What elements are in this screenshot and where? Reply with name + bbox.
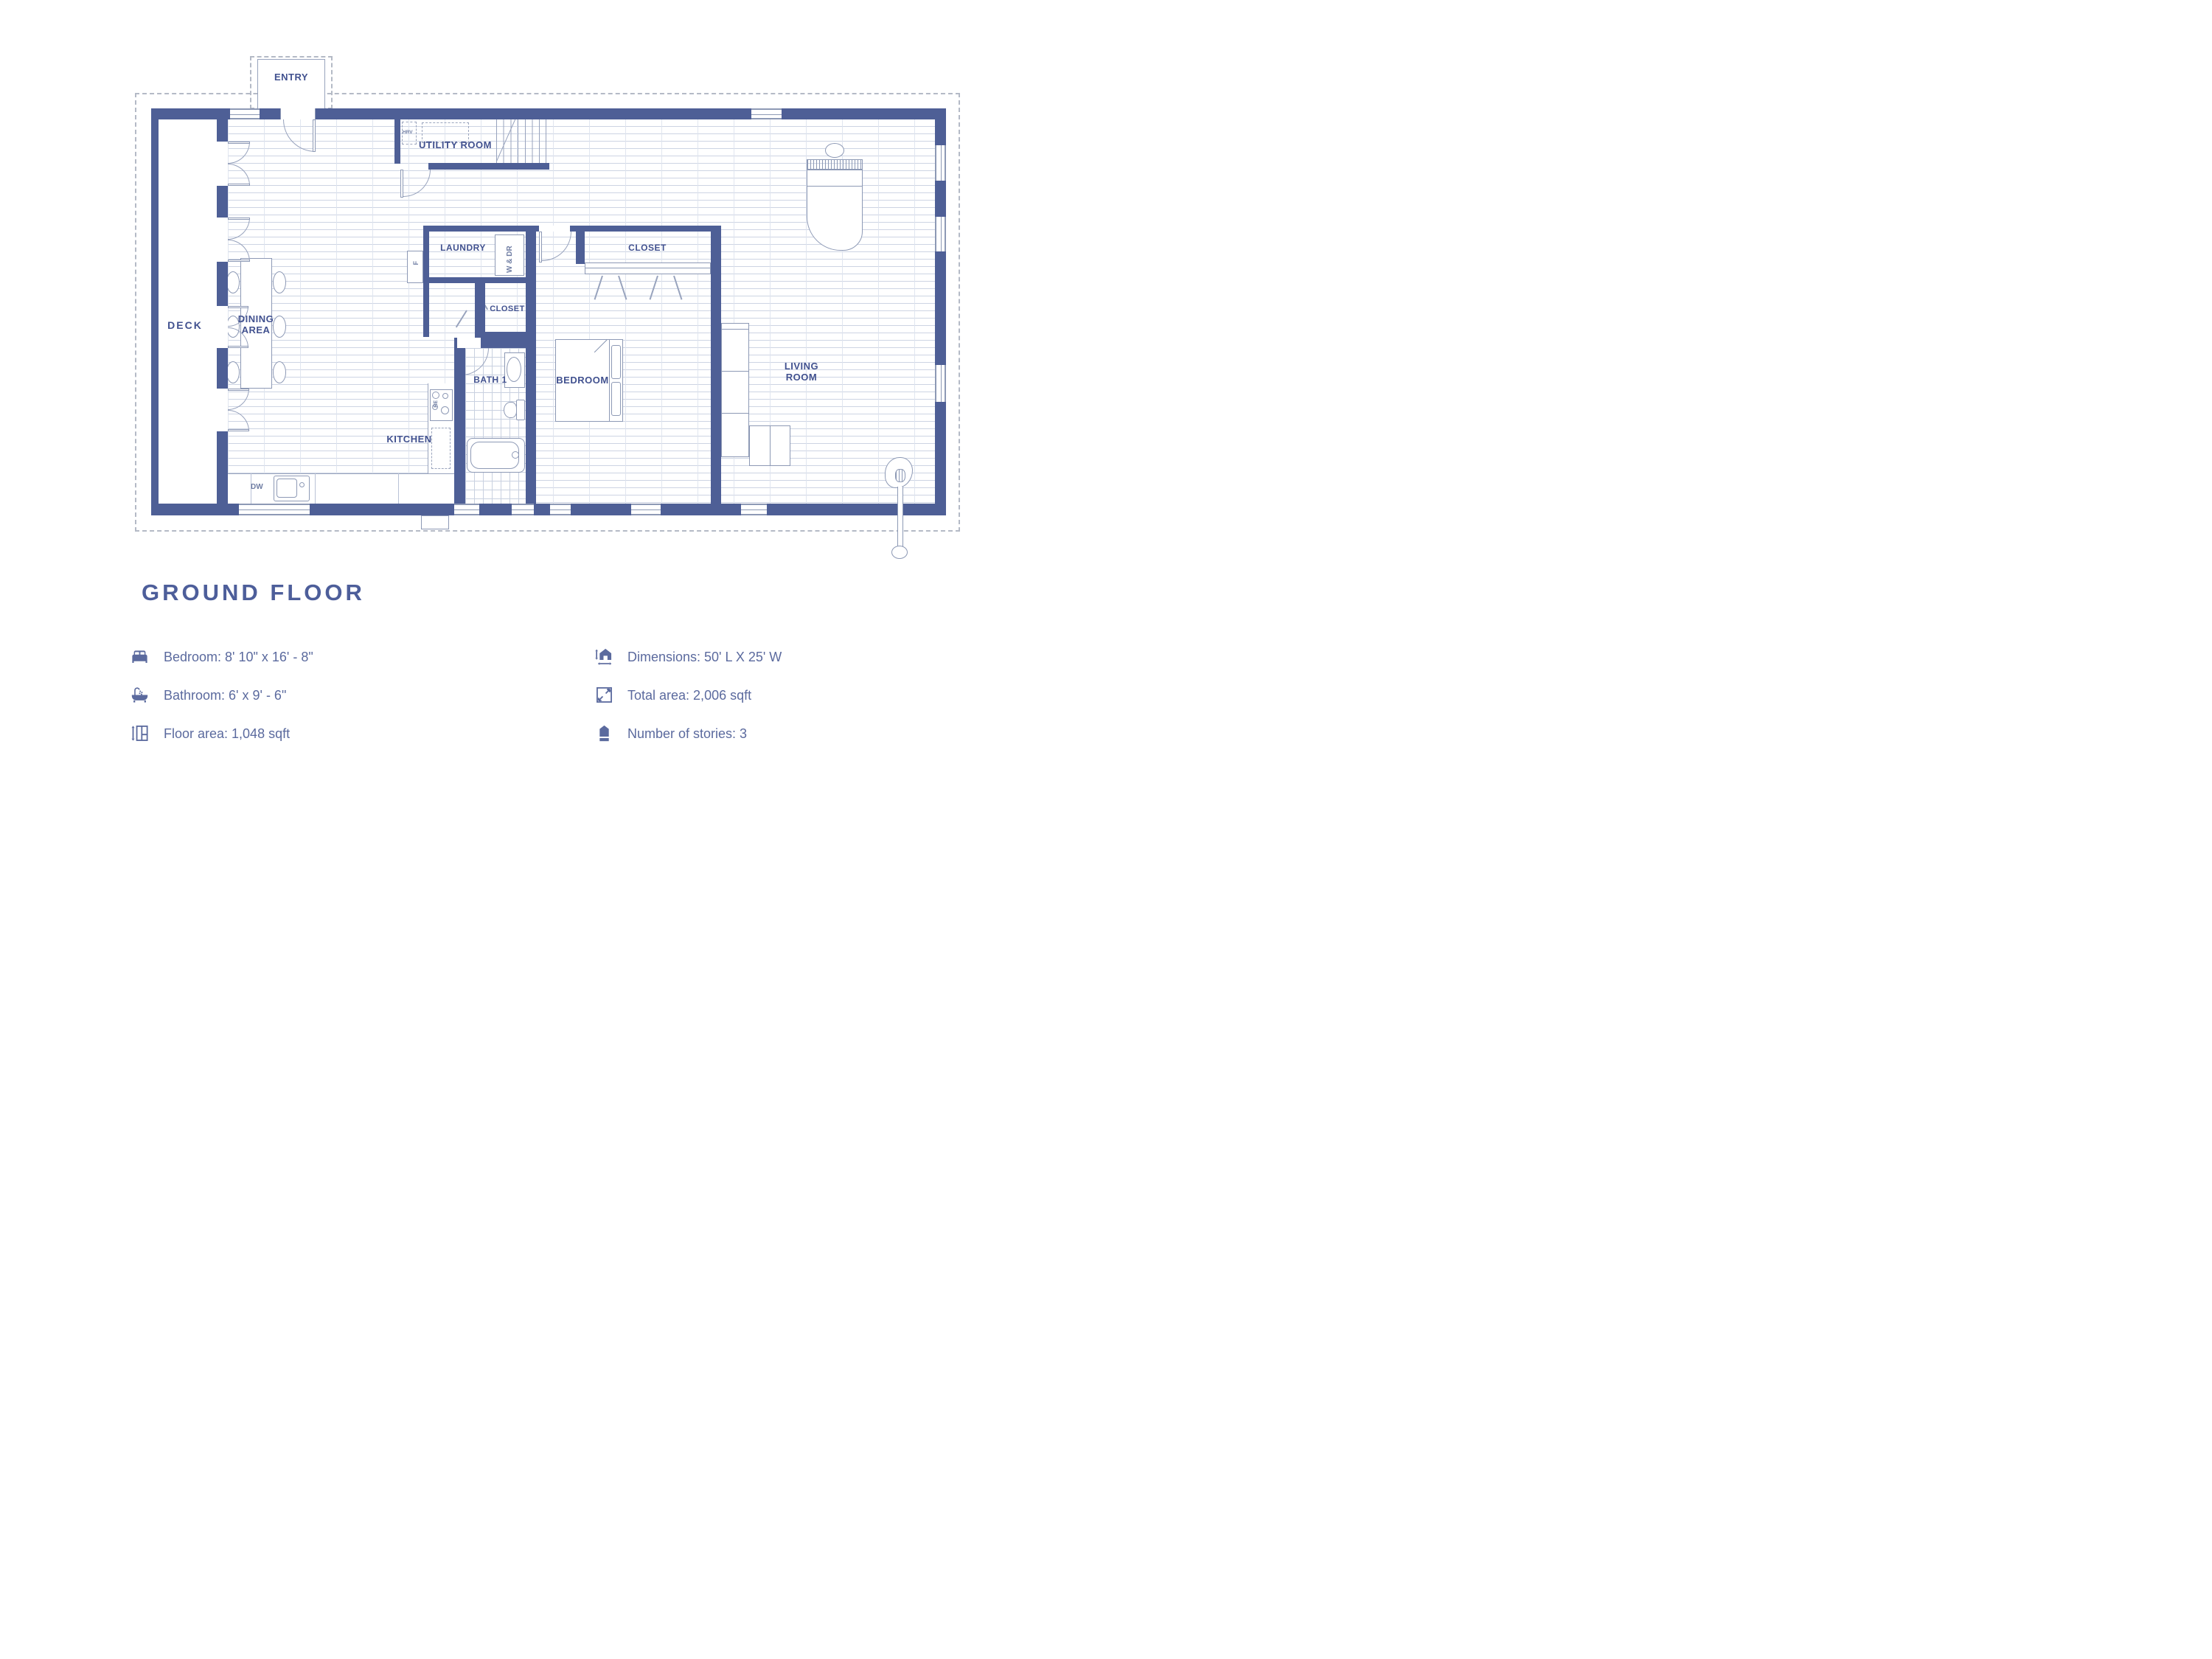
sofa-back — [721, 329, 749, 457]
dining-chair — [226, 271, 240, 293]
kitchen-window — [239, 504, 310, 515]
piano-body — [807, 170, 863, 251]
room-label-dining: DINING AREA — [234, 314, 278, 336]
blanket-fold — [594, 339, 608, 352]
wall-laundry-bottom — [429, 277, 526, 283]
washer-dryer-label: W & DR — [506, 237, 514, 273]
closet-rod — [585, 268, 711, 268]
bedroom-door-leaf — [539, 232, 542, 262]
wall-bedroomcloset-left — [576, 232, 585, 264]
sofa-cushion-line — [770, 425, 771, 466]
deck-door-leaf — [228, 218, 250, 220]
dining-chair — [226, 361, 240, 383]
toilet-bowl — [504, 402, 517, 418]
deck-door-opening — [217, 142, 228, 186]
wall-bath-left — [454, 348, 465, 504]
room-label-kitchen: KITCHEN — [376, 434, 442, 445]
deck-door-leaf — [228, 429, 249, 431]
pillow — [611, 382, 621, 416]
legend-total-area-text: Total area: 2,006 sqft — [627, 688, 751, 703]
legend-bathroom-text: Bathroom: 6' x 9' - 6" — [164, 688, 286, 703]
deck-door-leaf — [228, 306, 248, 308]
closet-shelf — [585, 262, 711, 274]
deck-door-opening — [217, 218, 228, 262]
sink-basin — [276, 479, 297, 498]
fridge-label: F — [412, 261, 420, 265]
room-label-living: LIVING ROOM — [772, 361, 831, 383]
wall-center-right — [526, 232, 536, 504]
range-label: RE — [434, 400, 439, 408]
bath-door-opening — [457, 338, 481, 348]
legend-bedroom-text: Bedroom: 8' 10" x 16' - 8" — [164, 650, 313, 665]
floor-area-icon — [130, 723, 150, 743]
wall-utility-bottom — [428, 163, 549, 170]
legend-dimensions-text: Dimensions: 50' L X 25' W — [627, 650, 782, 665]
room-label-bedroom: BEDROOM — [549, 375, 616, 386]
dishwasher-label: DW — [251, 483, 263, 491]
room-label-utility: UTILITY ROOM — [413, 140, 498, 151]
window — [935, 145, 946, 181]
floor-plan: ENTRY — [0, 0, 1106, 560]
room-label-laundry: LAUNDRY — [434, 243, 493, 254]
room-label-bath: BATH 1 — [470, 375, 510, 386]
window — [550, 504, 571, 515]
legend-floor-area-text: Floor area: 1,048 sqft — [164, 726, 290, 742]
fridge — [407, 251, 423, 283]
window — [935, 217, 946, 251]
lamp-base — [891, 546, 908, 559]
burner — [442, 393, 448, 399]
total-area-icon — [594, 685, 614, 705]
wall-bedroom-living — [711, 232, 721, 504]
window — [230, 108, 260, 119]
wall-hallcloset-left — [475, 283, 485, 332]
wall-top — [151, 108, 946, 119]
deck-door-opening — [217, 389, 228, 431]
piano-stool — [825, 143, 844, 158]
piano-lid-line — [807, 186, 863, 187]
pillow — [611, 345, 621, 379]
burner — [441, 406, 449, 414]
window — [631, 504, 661, 515]
utility-door-leaf — [400, 170, 403, 198]
deck-door-leaf — [228, 184, 250, 186]
stories-icon — [594, 723, 614, 743]
wall-laundry-top — [423, 226, 536, 232]
entry-vestibule — [257, 59, 325, 109]
wall-hallcloset-bottom — [475, 332, 536, 338]
page-title: GROUND FLOOR — [142, 580, 365, 606]
bedroom-door-opening — [539, 226, 570, 232]
deck-door-leaf — [228, 142, 250, 144]
lamp-pole — [897, 487, 903, 552]
window — [454, 504, 479, 515]
deck-door-opening — [217, 306, 228, 348]
staircase — [496, 119, 546, 163]
room-label-bedroom-closet: CLOSET — [623, 243, 672, 254]
deck-door-leaf — [228, 260, 250, 262]
toilet-tank — [516, 400, 525, 420]
legend-stories-text: Number of stories: 3 — [627, 726, 747, 742]
entry-door-leaf — [313, 119, 316, 152]
dining-chair — [273, 271, 286, 293]
window — [512, 504, 534, 515]
piano-keyboard — [807, 159, 863, 170]
entry-door-opening — [280, 108, 316, 119]
window — [935, 365, 946, 402]
counter-division — [315, 473, 316, 504]
wall-utility-left — [394, 119, 400, 164]
floorplan-page: { "title": "GROUND FLOOR", "colors": { "… — [0, 0, 1106, 829]
tub-faucet — [512, 451, 519, 459]
bed-icon — [130, 647, 150, 667]
room-label-hall-closet: CLOSET — [487, 305, 528, 314]
entry-stoop — [421, 515, 449, 529]
sink-faucet — [299, 482, 305, 487]
hrv-label: HRV — [403, 130, 413, 135]
burner — [432, 392, 439, 399]
window — [741, 504, 767, 515]
counter-division — [398, 473, 399, 504]
sofa-cushion-line — [721, 371, 749, 372]
lamp-bulb — [895, 469, 905, 482]
deck-door-leaf — [228, 346, 248, 348]
dimensions-icon — [594, 647, 614, 667]
deck-door-leaf — [228, 389, 249, 391]
bathtub-icon — [130, 685, 150, 705]
room-label-deck: DECK — [161, 319, 209, 331]
dining-chair — [273, 361, 286, 383]
wall-left-deck — [151, 108, 159, 515]
sofa-cushion-line — [721, 413, 749, 414]
wall-laundry-left — [423, 232, 429, 337]
window — [751, 108, 782, 119]
room-label-entry: ENTRY — [257, 72, 325, 83]
